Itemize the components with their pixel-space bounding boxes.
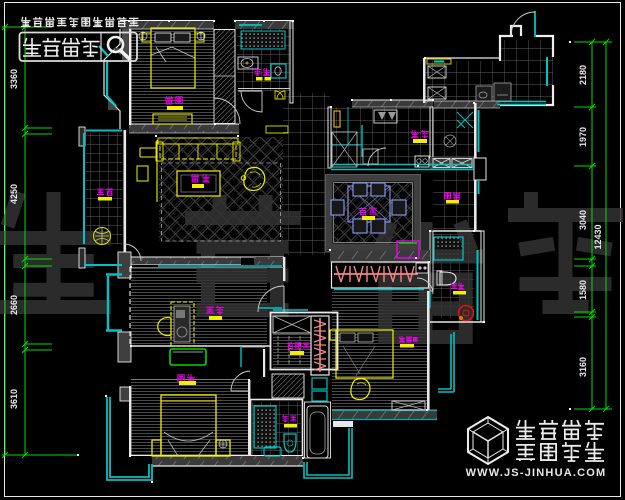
svg-text:3160: 3160 (578, 357, 588, 377)
svg-text:3610: 3610 (9, 389, 19, 409)
svg-text:WWW.JS-JINHUA.COM: WWW.JS-JINHUA.COM (466, 467, 607, 479)
svg-text:1580: 1580 (578, 280, 588, 300)
svg-text:1970: 1970 (578, 127, 588, 147)
svg-text:2660: 2660 (9, 295, 19, 315)
svg-text:3360: 3360 (9, 69, 19, 89)
svg-text:12430: 12430 (593, 224, 603, 249)
svg-text:2180: 2180 (578, 65, 588, 85)
svg-text:4250: 4250 (9, 184, 19, 204)
svg-text:3040: 3040 (578, 210, 588, 230)
